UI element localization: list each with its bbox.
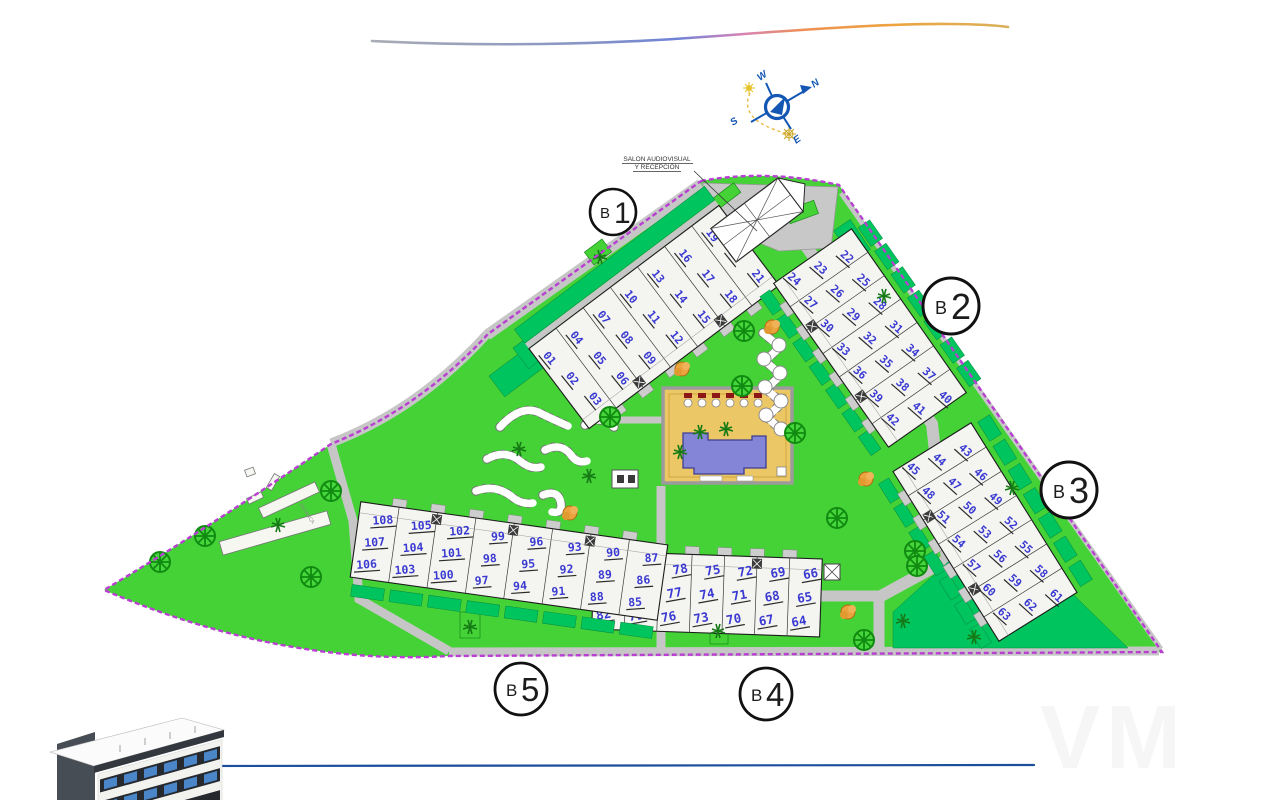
unit-label: 100 [430,567,457,583]
svg-text:N: N [809,77,822,91]
tree-icon [785,423,805,443]
svg-text:93: 93 [567,540,582,555]
svg-text:86: 86 [636,572,651,587]
unit-label: 101 [438,545,465,561]
utility-box [824,564,840,580]
svg-text:B: B [1053,482,1065,502]
tree-icon [600,407,620,427]
unit-label: 106 [353,556,380,572]
svg-text:91: 91 [551,584,566,599]
block-label-b5: B 5 [495,663,547,715]
tree-icon [907,556,927,576]
unit-label: 103 [391,562,418,578]
block-label-b1: B 1 [590,189,636,235]
tree-icon [734,321,754,341]
svg-text:85: 85 [628,595,643,610]
sun-icon [743,82,755,94]
svg-text:99: 99 [491,529,506,544]
svg-text:102: 102 [449,523,471,538]
svg-text:B: B [935,298,947,318]
tree-icon [301,567,321,587]
bush-icon [840,605,856,619]
svg-text:B: B [600,205,610,222]
svg-text:94: 94 [513,578,528,593]
svg-text:B: B [751,686,762,705]
top-wave-decoration [372,24,1008,44]
svg-text:W: W [755,68,770,83]
svg-text:1: 1 [614,197,631,230]
svg-text:98: 98 [482,551,497,566]
svg-text:5: 5 [521,671,539,708]
svg-text:105: 105 [410,518,432,533]
svg-text:97: 97 [474,573,489,588]
bush-icon [562,506,578,520]
svg-text:107: 107 [364,534,386,549]
block-label-b4: B 4 [740,668,792,720]
unit-label: 104 [400,540,427,556]
block-label-b2: B 2 [923,278,979,334]
bush-icon [764,320,780,334]
svg-text:101: 101 [441,545,463,560]
svg-text:108: 108 [372,512,394,527]
svg-text:90: 90 [606,545,621,560]
watermark: VM [1040,688,1187,788]
compass-rose: W N S E [728,68,822,146]
svg-text:92: 92 [559,562,574,577]
svg-text:88: 88 [589,589,604,604]
svg-text:96: 96 [529,534,544,549]
building-render [50,718,224,800]
tree-icon [854,630,874,650]
svg-text:87: 87 [644,550,659,565]
svg-text:B: B [506,681,517,700]
block-label-b3: B 3 [1041,462,1097,518]
svg-text:3: 3 [1069,470,1089,511]
svg-text:E: E [791,133,803,146]
svg-text:2: 2 [951,286,971,327]
svg-text:95: 95 [521,556,536,571]
svg-text:103: 103 [394,562,416,577]
tree-icon [827,508,847,528]
svg-text:4: 4 [766,676,784,713]
bush-icon [674,362,690,376]
bottom-rule [186,765,1034,766]
svg-text:S: S [728,115,740,128]
svg-text:SALON AUDIOVISUAL: SALON AUDIOVISUAL [623,156,691,163]
tree-icon [195,526,215,546]
svg-text:100: 100 [432,567,454,582]
bush-icon [858,472,874,486]
unit-label: 108 [369,512,396,528]
unit-label: 105 [408,518,435,534]
tree-icon [321,481,341,501]
tree-icon [732,376,752,396]
svg-text:106: 106 [356,557,378,572]
svg-text:104: 104 [402,540,424,555]
svg-text:89: 89 [598,567,613,582]
unit-label: 102 [446,523,473,539]
site-plan-canvas: PETANCA 0 [0,0,1280,800]
unit-label: 107 [361,534,388,550]
